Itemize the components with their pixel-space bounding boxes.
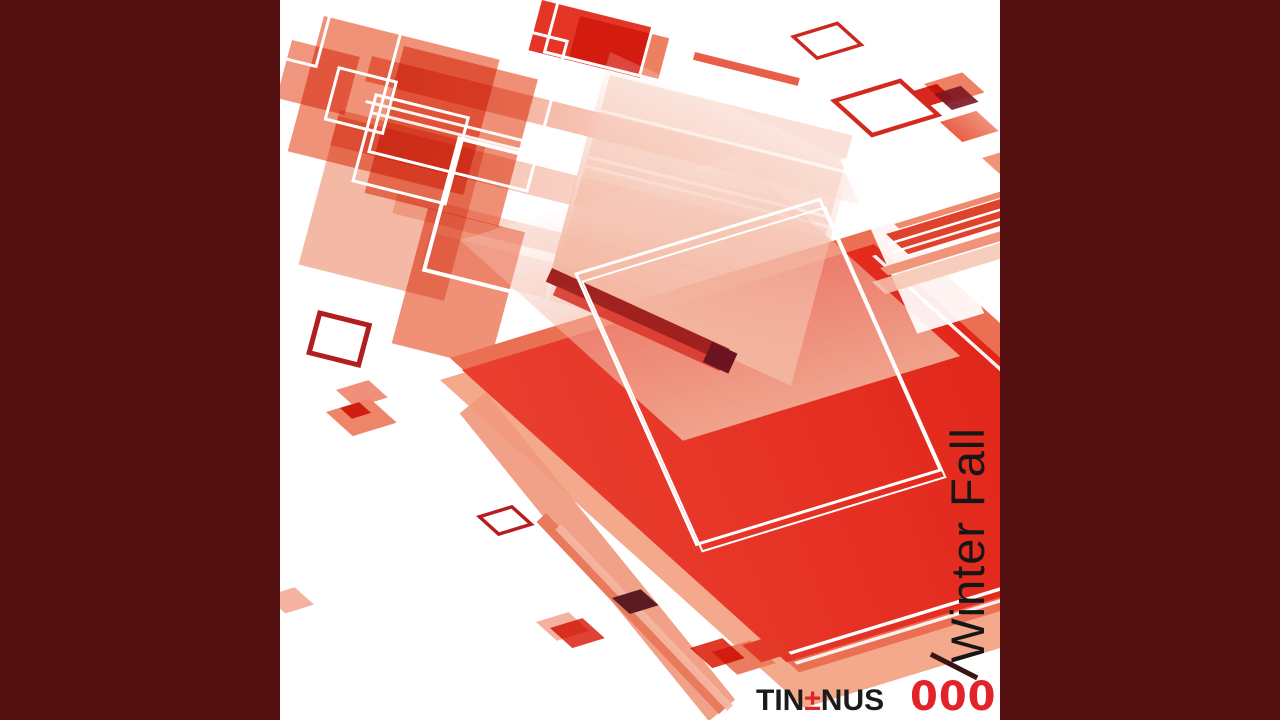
left-edge-salmon-shape — [280, 587, 314, 613]
cover-art-shapes — [280, 0, 1000, 720]
tr-salmon-edge-shape — [982, 148, 1000, 175]
plusminus-glyph: ± — [804, 684, 820, 717]
label-logo-post: NUS — [821, 684, 884, 717]
tr-salmon-2-shape — [940, 111, 999, 142]
label-logo-pre: TIN — [756, 684, 804, 717]
bl-outline-small-shape — [476, 505, 535, 536]
right-letterbox-bar — [1000, 0, 1280, 720]
label-logo: TIN±NUS — [756, 684, 884, 718]
top-thin-red-bar-shape — [693, 52, 800, 86]
catalog-number: 0001 — [910, 674, 1000, 720]
album-title-vertical: Winter Fall — [938, 425, 998, 665]
tr-outline-small-shape — [790, 21, 865, 60]
ml-outline-shape — [306, 310, 372, 368]
album-cover-thumbnail: Winter Fall TIN±NUS 0001 — [0, 0, 1280, 720]
left-letterbox-bar — [0, 0, 280, 720]
cover-art-canvas: Winter Fall TIN±NUS 0001 — [280, 0, 1000, 720]
